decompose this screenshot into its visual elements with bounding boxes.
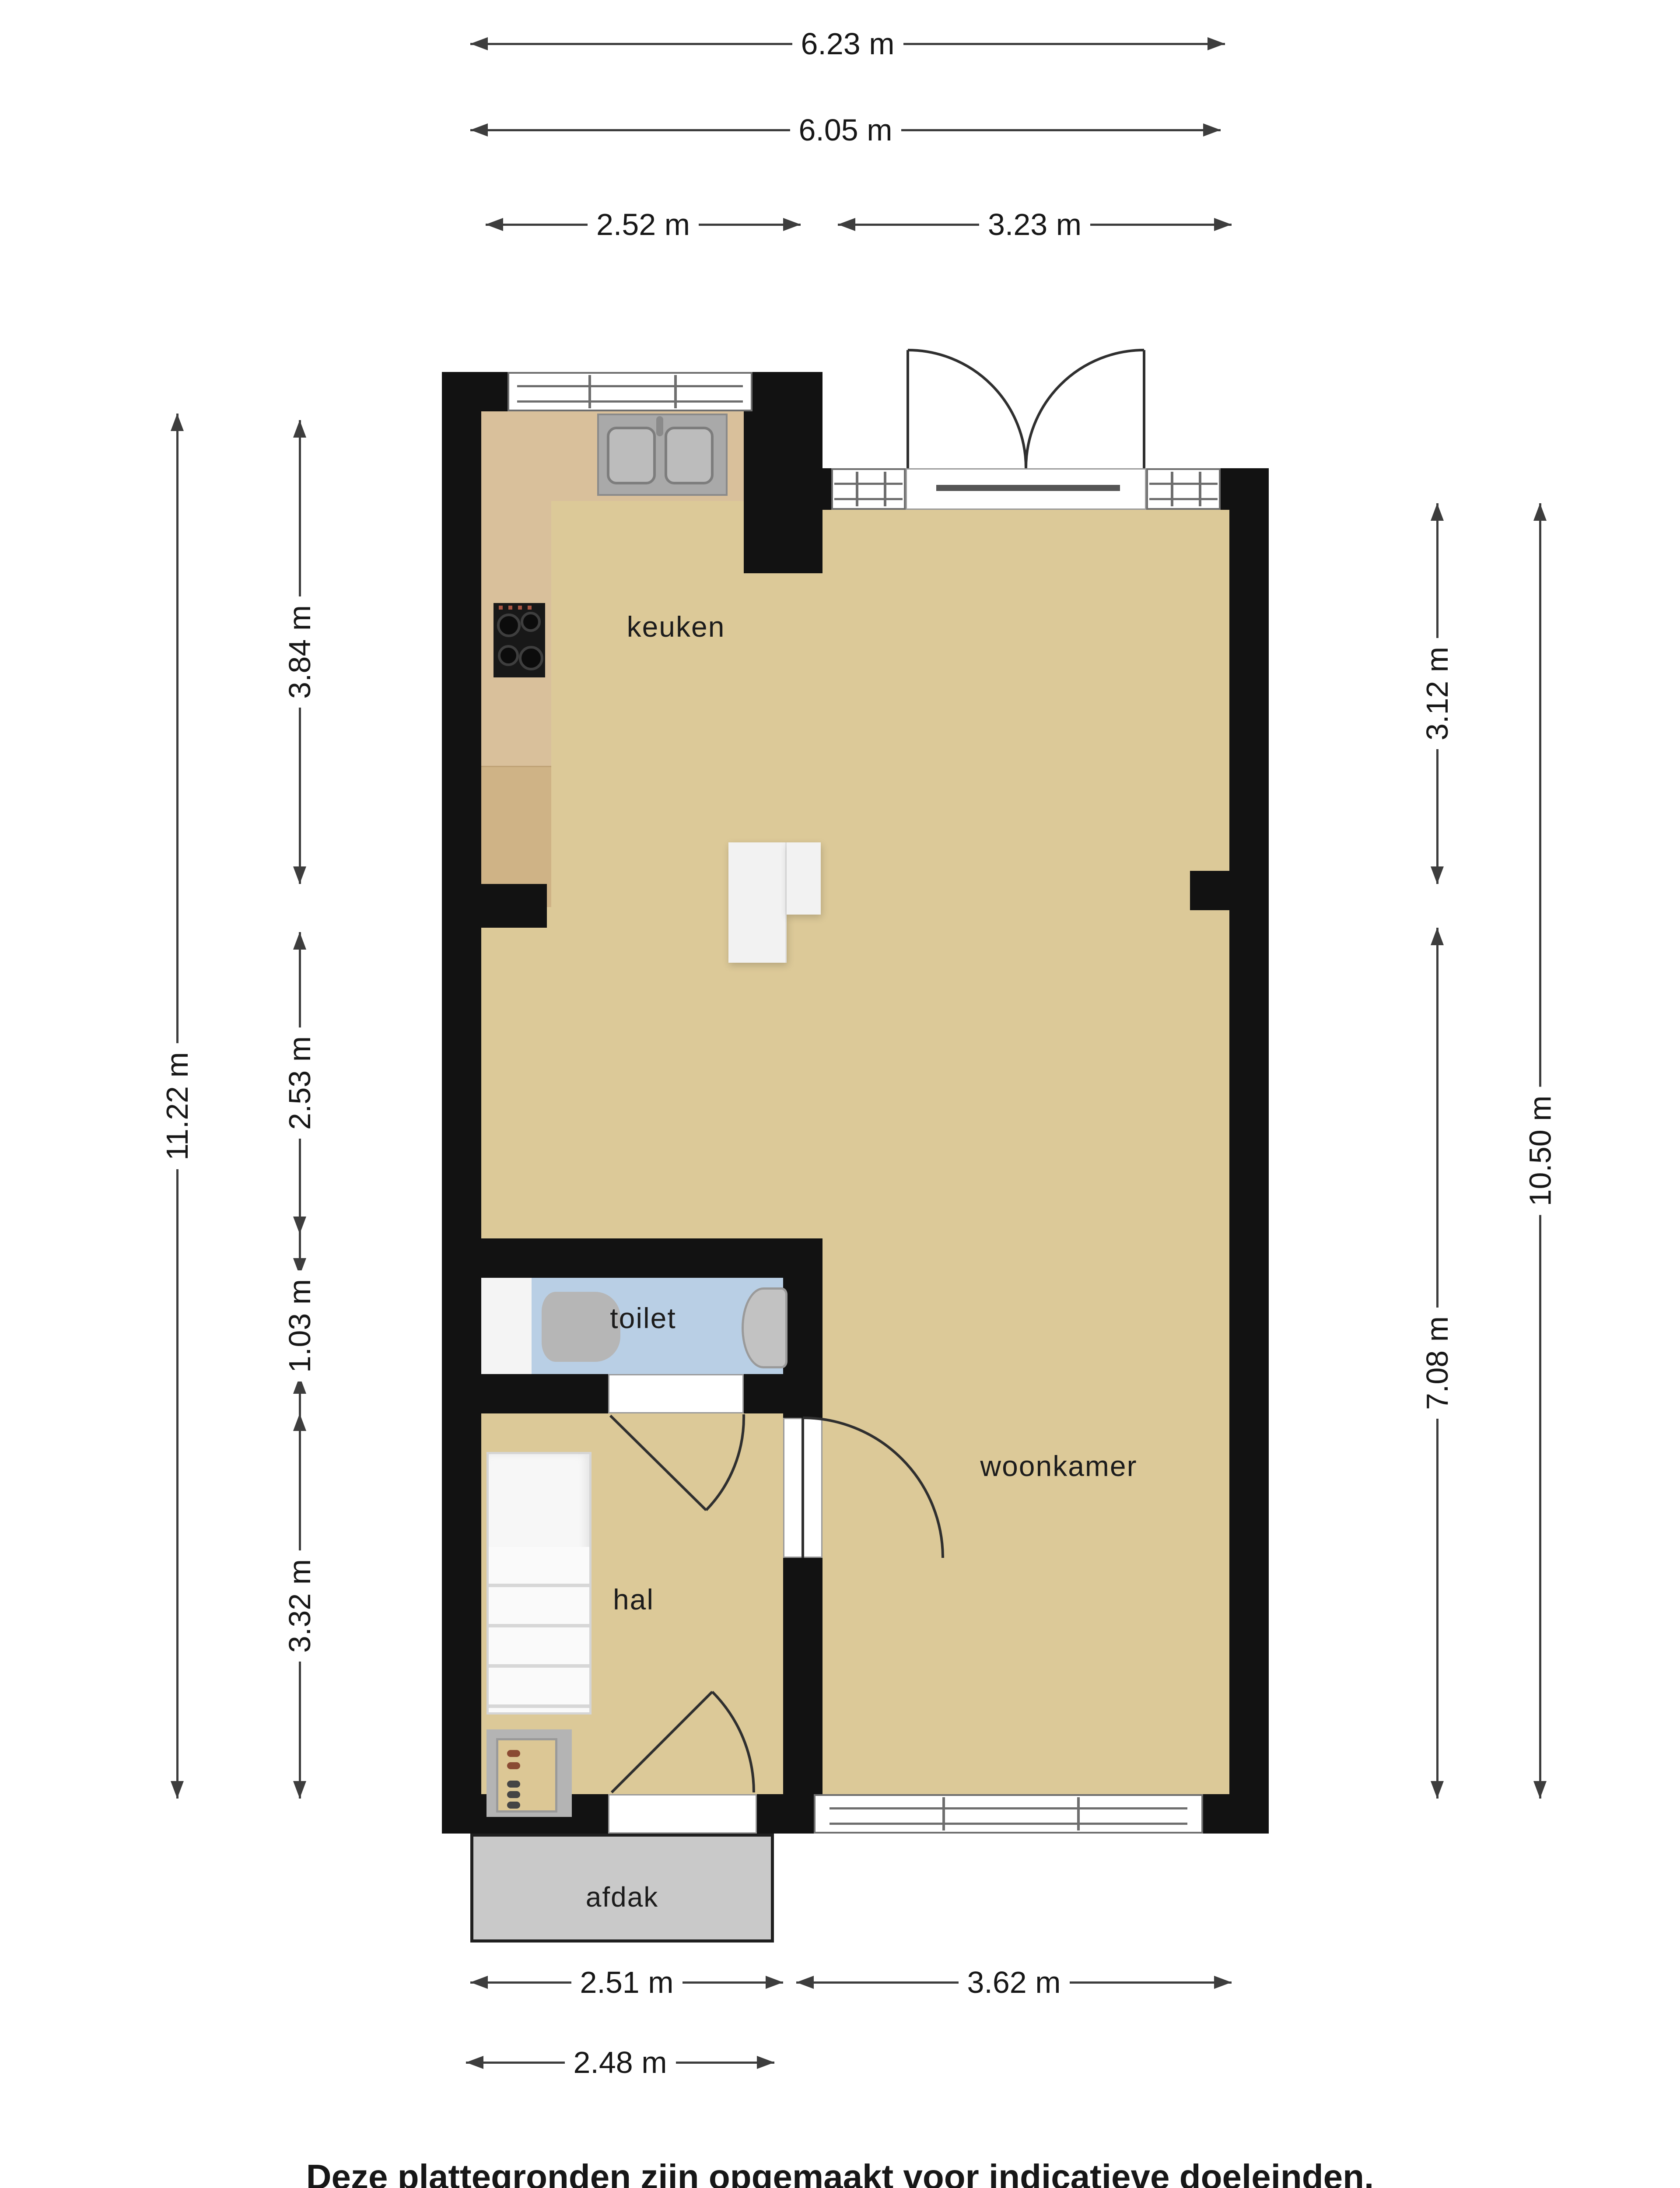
room-label-hal: hal [613, 1583, 654, 1616]
french-door-right-arc [1026, 350, 1144, 468]
room-label-keuken: keuken [627, 610, 725, 643]
toilet-door-leaf [610, 1416, 706, 1510]
french-door-left-arc [908, 350, 1026, 468]
toilet-door-arc [706, 1414, 744, 1510]
front-door-arc [712, 1692, 754, 1792]
living-door-arc [803, 1418, 943, 1558]
door-swing-overlay [0, 0, 1680, 2188]
room-label-toilet: toilet [610, 1301, 676, 1335]
floor-plan-page: afdak keuken woonkamer toilet hal 6.23 m… [0, 0, 1680, 2188]
room-label-woonkamer: woonkamer [980, 1449, 1137, 1483]
front-door-leaf [612, 1692, 712, 1792]
